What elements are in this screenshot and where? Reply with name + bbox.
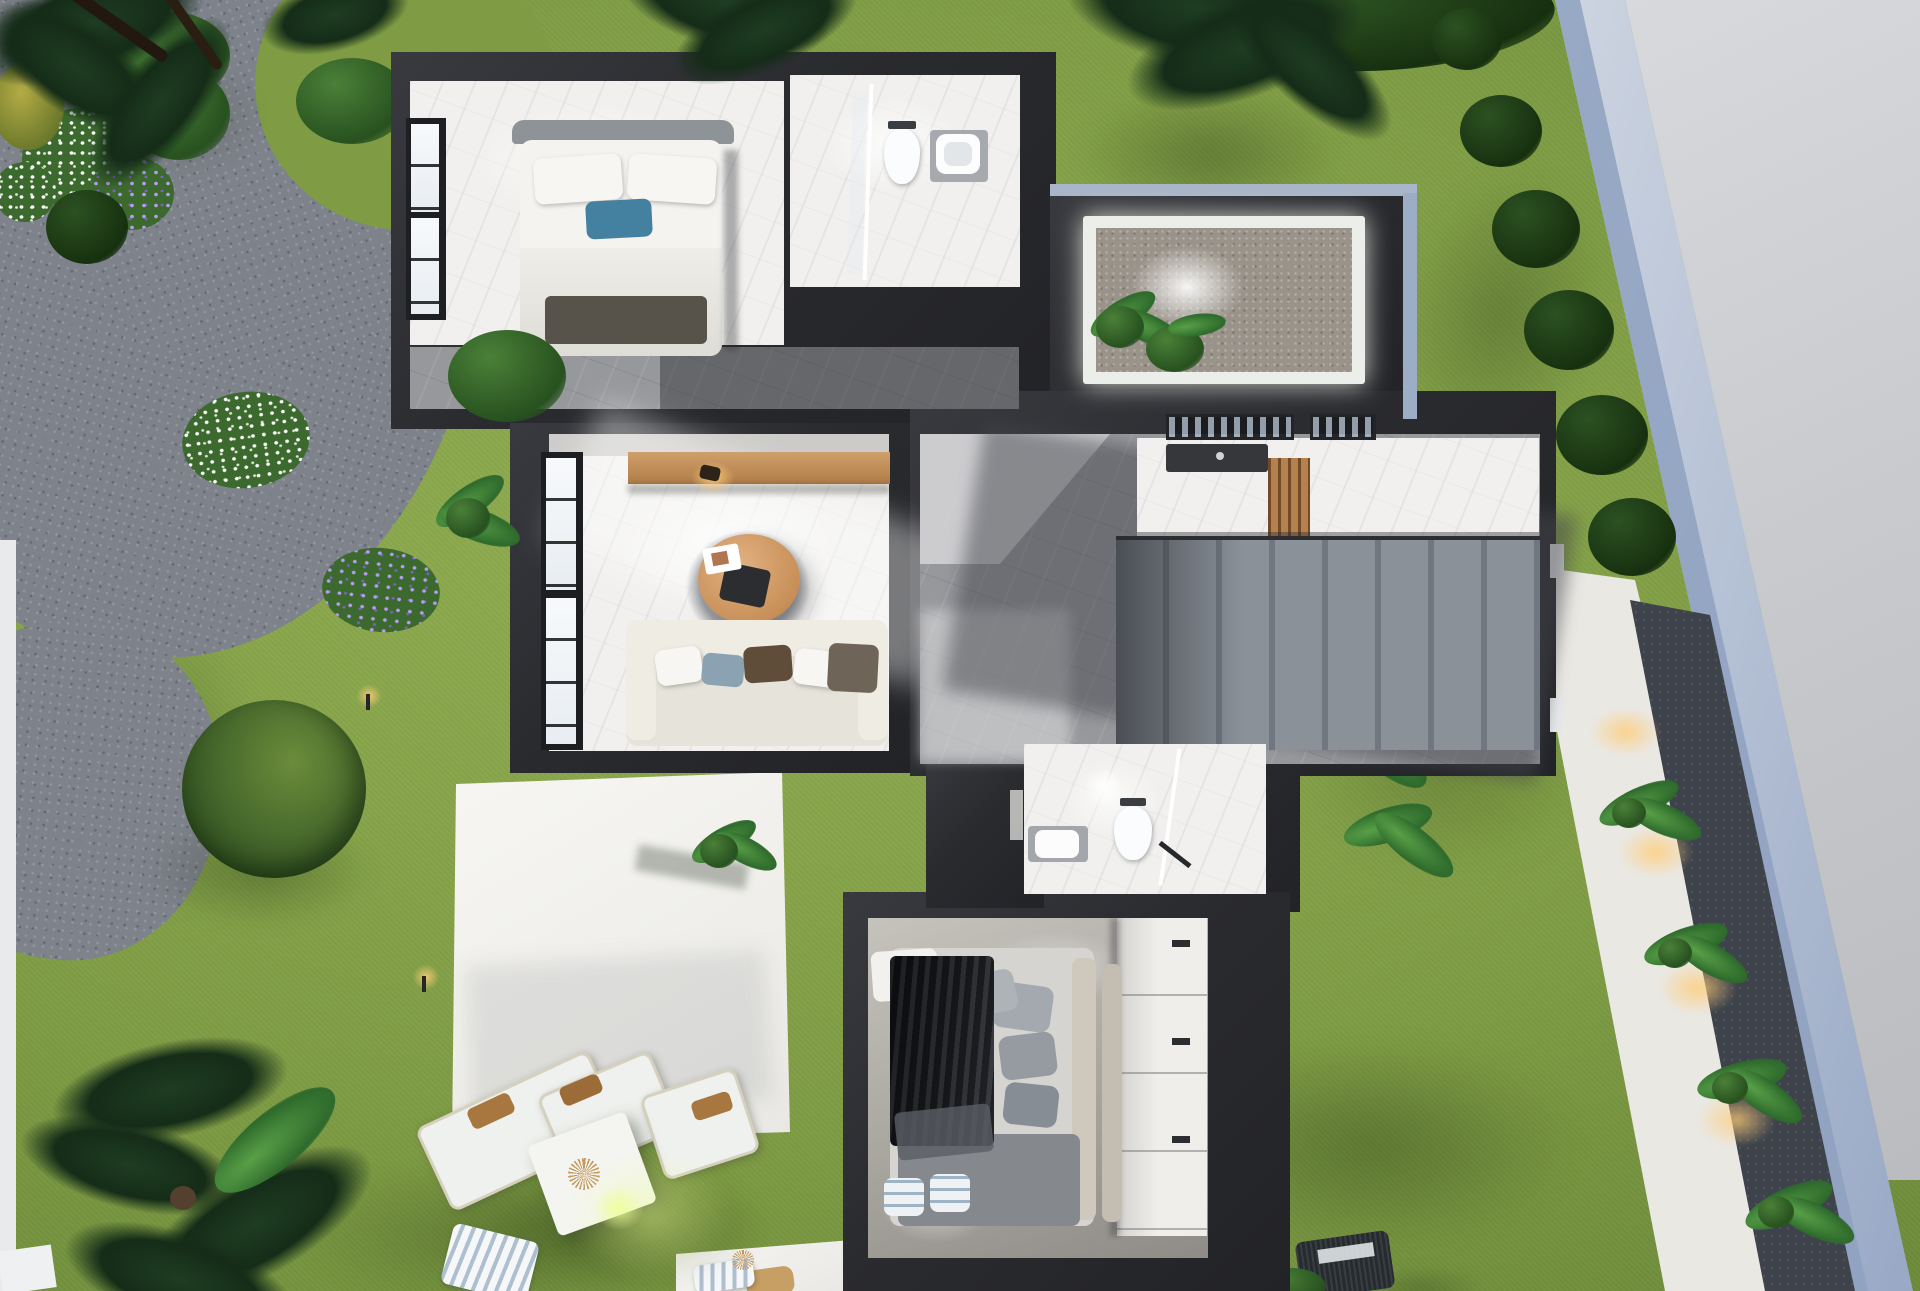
- bed1-side-shadow: [724, 150, 738, 350]
- living-shelf-shadow: [628, 484, 890, 494]
- staircase: [1116, 540, 1540, 750]
- bath2-sink: [1035, 830, 1079, 858]
- living-shelf: [628, 452, 890, 484]
- rug-cushion-1: [884, 1178, 924, 1216]
- living-sofa-pillow-1: [654, 645, 705, 687]
- wardrobe-handle-3: [1172, 1136, 1190, 1143]
- bed1-pillow-left: [533, 153, 624, 205]
- bath2-toilet: [1114, 806, 1152, 860]
- bath2-door-gap: [1010, 790, 1023, 840]
- kitchen-skylight-1: [1166, 414, 1294, 440]
- kitchen-faucet: [1216, 452, 1224, 460]
- overhanging-bush-west: [448, 330, 566, 422]
- courtyard-shrub-1: [1096, 306, 1144, 348]
- wardrobe-handle-1: [1172, 940, 1190, 947]
- facade-window-sill-2: [1550, 698, 1564, 732]
- bed1-pillow-right: [627, 153, 718, 205]
- bath2-toilet-flush-plate: [1120, 798, 1146, 806]
- garden-lamp-post-1: [366, 694, 370, 710]
- living-sofa-arm-left: [626, 624, 656, 740]
- palm-cluster-trunk: [170, 1186, 196, 1210]
- path-light-pool-1: [1578, 700, 1673, 764]
- wardrobe-handle-2: [1172, 1038, 1190, 1045]
- rug-cushion-2: [930, 1174, 970, 1212]
- hedge-ball-1: [1432, 8, 1502, 70]
- garden-wall-left: [0, 540, 16, 1291]
- living-sofa-pillow-brown: [743, 644, 793, 683]
- living-sofa-pillow-blue: [701, 652, 746, 688]
- bath1-sink-basin: [944, 142, 972, 166]
- entrance-outer-wall-right: [1403, 193, 1417, 419]
- bath1-toilet: [884, 128, 920, 184]
- hall1-floor-shadow: [660, 347, 1019, 409]
- hedge-ball-3: [1492, 190, 1580, 268]
- hedge-ball-2: [1460, 95, 1542, 167]
- garden-tree: [182, 700, 366, 878]
- hedge-ball-6: [1588, 498, 1676, 576]
- hedge-ball-5: [1556, 395, 1648, 475]
- bedroom2-wardrobe: [1117, 918, 1207, 1236]
- bedroom1-window-glass-2: [411, 218, 439, 314]
- bed1-throw-blanket: [545, 296, 707, 344]
- living-book-photo: [711, 551, 729, 567]
- strip-plant-4-core: [1758, 1196, 1794, 1228]
- bed2-pillow-3: [1002, 1081, 1060, 1128]
- strip-plant-2-core: [1658, 938, 1692, 968]
- bedroom2-rug-2: [981, 1148, 1085, 1224]
- patio-plant-core: [700, 834, 738, 868]
- entrance-outer-wall-top: [1050, 184, 1417, 196]
- living-window-glass-2: [546, 598, 576, 744]
- garden-glow-core: [586, 1178, 652, 1238]
- living-sofa-throw: [827, 643, 879, 694]
- bed2-pillow-2: [998, 1031, 1059, 1081]
- garden-lamp-glow-2: [408, 960, 444, 994]
- bedroom1-window-glass-1: [411, 124, 439, 212]
- living-window-glass-1: [546, 458, 576, 590]
- kitchen-bar-stools: [1268, 458, 1310, 538]
- bath1-toilet-flush-plate: [888, 121, 916, 129]
- hedge-ball-4: [1524, 290, 1614, 370]
- kitchen-skylight-2: [1310, 414, 1376, 440]
- floorplan-3d-render: [0, 0, 1920, 1291]
- garden-lamp-post-2: [422, 976, 426, 992]
- strip-plant-1-core: [1612, 798, 1646, 828]
- bed2-headboard-2: [1102, 964, 1122, 1222]
- overhanging-plant-west-core: [446, 498, 490, 538]
- bed1-pillow-blue: [585, 198, 653, 239]
- strip-plant-3-core: [1712, 1072, 1748, 1104]
